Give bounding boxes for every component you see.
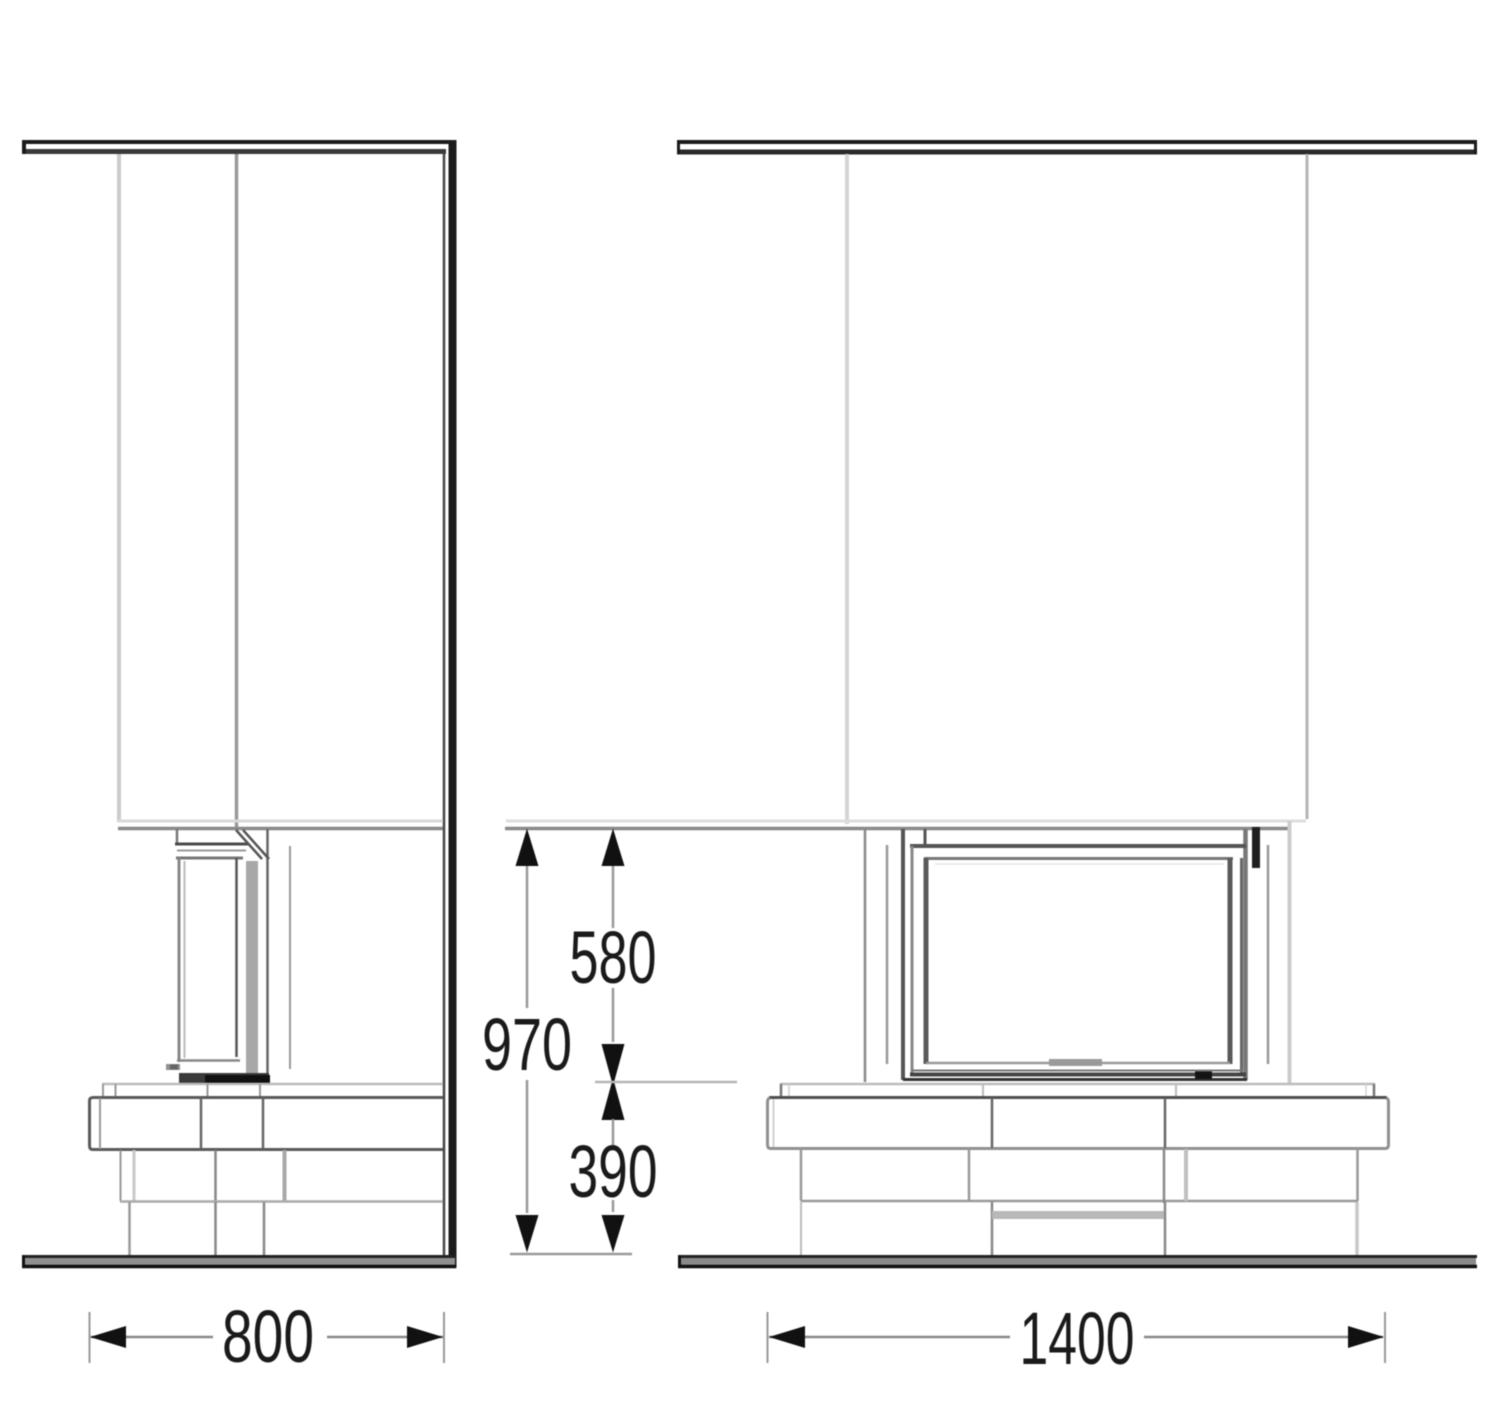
svg-text:970: 970 xyxy=(482,1003,572,1086)
svg-text:390: 390 xyxy=(569,1130,658,1213)
svg-text:800: 800 xyxy=(222,1295,314,1378)
svg-text:580: 580 xyxy=(570,916,657,999)
svg-text:1400: 1400 xyxy=(1020,1297,1135,1380)
